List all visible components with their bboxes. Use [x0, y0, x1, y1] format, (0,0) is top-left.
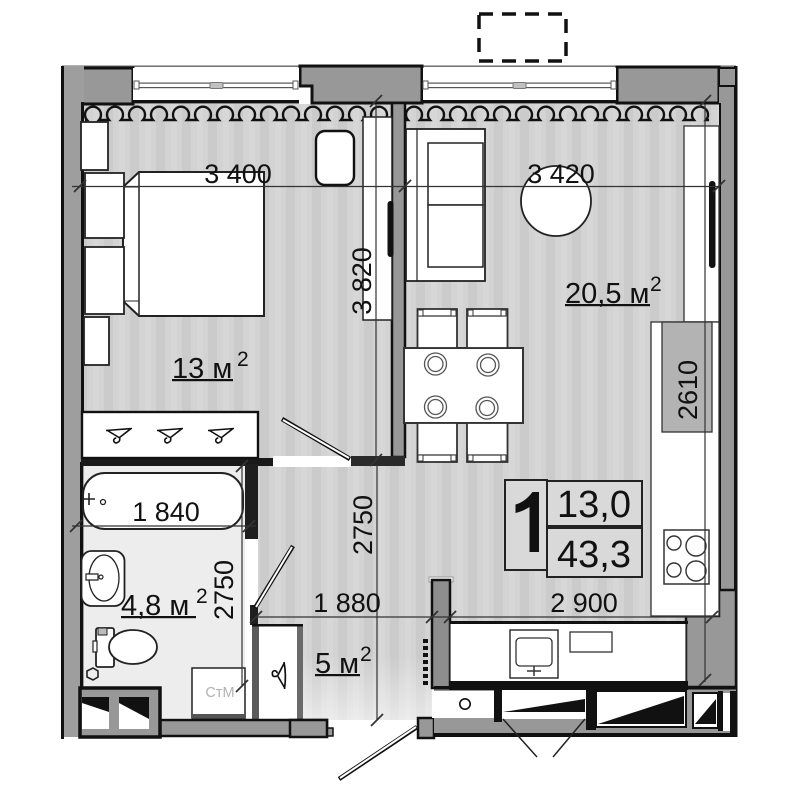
svg-text:2750: 2750 [209, 560, 239, 620]
svg-text:2 900: 2 900 [550, 588, 618, 618]
svg-text:2: 2 [237, 348, 249, 371]
svg-text:2610: 2610 [673, 360, 703, 420]
svg-text:1 840: 1 840 [132, 497, 200, 527]
svg-text:13,0: 13,0 [557, 484, 631, 526]
svg-text:2: 2 [650, 273, 662, 296]
svg-text:3 820: 3 820 [347, 247, 377, 315]
svg-text:2: 2 [360, 643, 372, 666]
svg-text:3 400: 3 400 [204, 159, 272, 189]
svg-text:43,3: 43,3 [557, 534, 631, 576]
svg-text:1 880: 1 880 [313, 588, 381, 618]
svg-text:2750: 2750 [348, 495, 378, 555]
svg-text:2: 2 [196, 585, 208, 608]
svg-text:3 420: 3 420 [527, 159, 595, 189]
svg-text:СтМ: СтМ [205, 685, 234, 701]
